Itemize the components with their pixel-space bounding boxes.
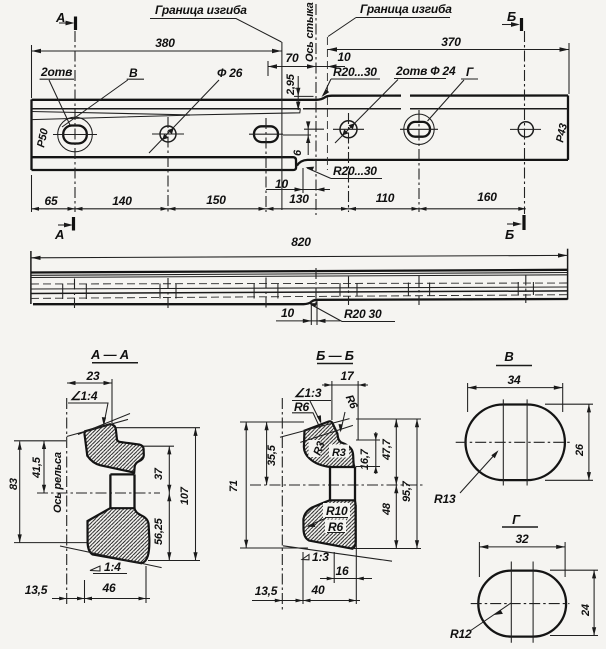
svg-text:110: 110 (376, 191, 395, 205)
svg-text:Ось стыка: Ось стыка (304, 2, 316, 62)
svg-text:40: 40 (311, 583, 325, 597)
svg-text:37: 37 (153, 467, 165, 480)
svg-text:65: 65 (45, 194, 58, 208)
svg-text:10: 10 (275, 177, 288, 191)
svg-text:47,7: 47,7 (381, 438, 393, 461)
svg-text:24: 24 (580, 604, 592, 617)
svg-text:Б: Б (505, 227, 514, 242)
svg-text:1:4: 1:4 (104, 560, 121, 574)
svg-text:95,7: 95,7 (401, 480, 413, 502)
svg-text:140: 140 (112, 194, 132, 208)
svg-text:26: 26 (574, 443, 586, 457)
svg-text:56,25: 56,25 (153, 517, 165, 545)
svg-text:17: 17 (341, 369, 355, 383)
svg-text:2,95: 2,95 (285, 73, 297, 96)
svg-text:∠1:4: ∠1:4 (70, 389, 98, 403)
svg-text:13,5: 13,5 (25, 583, 48, 597)
svg-text:70: 70 (286, 51, 299, 65)
svg-text:R12: R12 (450, 627, 472, 641)
svg-text:380: 380 (155, 36, 175, 50)
svg-text:Граница изгиба: Граница изгиба (360, 2, 452, 16)
svg-text:46: 46 (102, 581, 116, 595)
svg-text:Г: Г (466, 65, 474, 79)
svg-text:R6: R6 (294, 400, 309, 414)
svg-text:В: В (504, 349, 513, 364)
svg-text:R13: R13 (434, 492, 456, 506)
svg-text:R10: R10 (326, 504, 348, 518)
svg-text:71: 71 (228, 480, 240, 492)
svg-text:370: 370 (441, 35, 461, 49)
svg-text:150: 150 (206, 193, 226, 207)
svg-text:Ф 26: Ф 26 (217, 66, 243, 80)
svg-text:2отв Ф 24: 2отв Ф 24 (395, 64, 456, 78)
svg-text:Г: Г (512, 512, 521, 527)
svg-text:Б: Б (507, 9, 516, 24)
svg-text:35,5: 35,5 (266, 444, 278, 466)
svg-text:R20...30: R20...30 (333, 164, 377, 178)
svg-text:R20 30: R20 30 (344, 307, 382, 321)
svg-text:48: 48 (381, 502, 393, 516)
svg-text:В: В (129, 66, 138, 80)
svg-text:130: 130 (289, 192, 309, 206)
svg-text:10: 10 (338, 50, 351, 64)
svg-text:16: 16 (336, 564, 349, 578)
svg-text:Граница изгиба: Граница изгиба (155, 3, 247, 17)
svg-text:820: 820 (291, 235, 311, 249)
svg-text:83: 83 (8, 478, 20, 490)
svg-text:R20...30: R20...30 (333, 65, 377, 79)
svg-text:2отв: 2отв (40, 65, 72, 79)
svg-text:∠1:3: ∠1:3 (294, 386, 322, 400)
svg-text:107: 107 (179, 486, 191, 505)
svg-text:А — А: А — А (90, 347, 129, 362)
svg-text:10: 10 (281, 306, 294, 320)
svg-text:Б — Б: Б — Б (316, 348, 354, 363)
svg-text:41,5: 41,5 (31, 456, 43, 479)
svg-text:А: А (54, 227, 64, 242)
svg-text:34: 34 (508, 373, 521, 387)
svg-text:32: 32 (516, 532, 529, 546)
svg-text:1:3: 1:3 (312, 550, 329, 564)
svg-text:13,5: 13,5 (255, 584, 278, 598)
svg-text:Ось рельса: Ось рельса (52, 452, 64, 513)
svg-text:R3: R3 (332, 447, 346, 459)
svg-text:23: 23 (86, 369, 100, 383)
svg-text:160: 160 (477, 190, 497, 204)
svg-text:R6: R6 (328, 520, 343, 534)
